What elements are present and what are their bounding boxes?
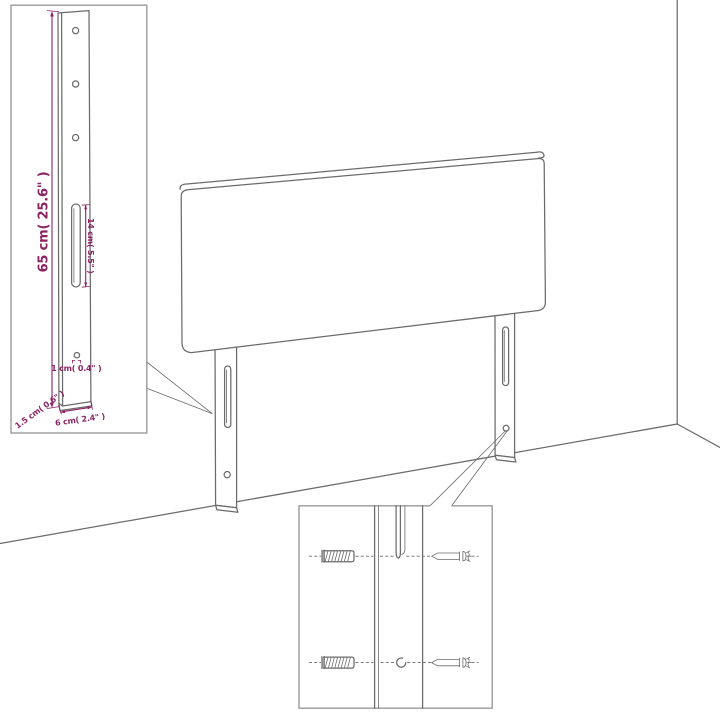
- leg-detail-inset: 65 cm( 25.6" ) 14 cm( 5.5" ) 1 cm( 0.4" …: [11, 5, 147, 433]
- hardware-detail-inset: [299, 506, 492, 708]
- dimension-annotations: 65 cm( 25.6" ) 14 cm( 5.5" ) 1 cm( 0.4" …: [13, 11, 105, 431]
- wall-plug-icon: [322, 656, 354, 669]
- leg-height-label: 65 cm( 25.6" ): [37, 172, 52, 273]
- diagram-svg: 65 cm( 25.6" ) 14 cm( 5.5" ) 1 cm( 0.4" …: [0, 0, 720, 720]
- left-leg-slot: [225, 366, 231, 428]
- callout-line: [147, 362, 212, 414]
- headboard-panel: [180, 152, 545, 353]
- screw-hole-icon: [73, 81, 79, 87]
- leg-top-edge: [58, 11, 89, 13]
- extension-tick: [47, 11, 59, 12]
- leg-inset-callout: [147, 362, 212, 414]
- screw-hole-icon: [73, 135, 79, 141]
- arrowhead-up: [50, 11, 54, 17]
- headboard-front-face: [181, 159, 545, 353]
- leg-inner-left-edge: [62, 13, 63, 406]
- hole-diameter-label: 1 cm( 0.4" ): [51, 364, 101, 373]
- leg-bottom-edge: [63, 402, 91, 406]
- leg-width-label: 6 cm( 2.4" ): [55, 412, 106, 428]
- right-leg-hole: [503, 425, 509, 431]
- hole-width-bracket: [72, 360, 80, 363]
- wall-plug-icon: [322, 550, 354, 563]
- leg-outer-left-edge: [58, 13, 59, 403]
- callout-line: [147, 388, 212, 413]
- headboard-top-edge-curl: [537, 152, 544, 158]
- leg-right-edge: [89, 11, 91, 402]
- slot-length-label: 14 cm( 5.5" ): [86, 218, 95, 274]
- callout-line: [430, 431, 505, 506]
- headboard-assembly-diagram: 65 cm( 25.6" ) 14 cm( 5.5" ) 1 cm( 0.4" …: [0, 0, 720, 720]
- right-leg-slot: [503, 327, 509, 386]
- screw-hole-icon: [73, 28, 79, 34]
- small-hole-icon: [74, 353, 79, 358]
- mounting-leg-side-view-icon: [58, 11, 92, 411]
- callout-line: [452, 431, 508, 506]
- left-leg-hole: [224, 472, 230, 478]
- long-slot-icon: [72, 204, 81, 287]
